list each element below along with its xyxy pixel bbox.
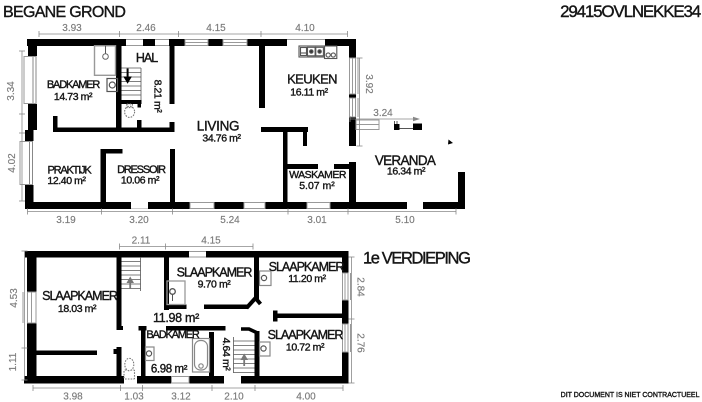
svg-text:29415OVLNEKKE34: 29415OVLNEKKE34 [560, 2, 701, 21]
svg-text:9.70 m²: 9.70 m² [198, 279, 232, 291]
svg-text:4.64 m²: 4.64 m² [220, 338, 232, 372]
svg-text:KEUKEN: KEUKEN [287, 72, 337, 87]
svg-text:4.15: 4.15 [201, 236, 221, 247]
svg-text:4.53: 4.53 [9, 288, 20, 308]
svg-text:16.11 m²: 16.11 m² [290, 87, 328, 99]
svg-text:SLAAPKAMER: SLAAPKAMER [269, 260, 345, 274]
svg-text:18.03 m²: 18.03 m² [58, 303, 97, 315]
svg-text:2.11: 2.11 [132, 236, 151, 247]
svg-text:3.93: 3.93 [62, 23, 82, 34]
svg-text:12.40 m²: 12.40 m² [47, 175, 86, 187]
svg-text:LIVING: LIVING [197, 119, 239, 134]
svg-text:10.06 m²: 10.06 m² [121, 175, 160, 187]
svg-text:14.73 m²: 14.73 m² [54, 91, 93, 103]
svg-text:2.10: 2.10 [224, 392, 244, 402]
svg-text:4.00: 4.00 [296, 392, 316, 402]
svg-text:BADKAMER: BADKAMER [47, 79, 100, 91]
svg-text:6.98 m²: 6.98 m² [151, 364, 188, 376]
svg-text:3.34: 3.34 [6, 81, 17, 101]
svg-text:BADKAMER: BADKAMER [146, 329, 199, 341]
svg-text:11.20 m²: 11.20 m² [288, 273, 326, 285]
svg-text:8.21 m²: 8.21 m² [152, 80, 164, 114]
svg-text:4.10: 4.10 [295, 23, 315, 34]
svg-text:10.72 m²: 10.72 m² [286, 342, 325, 354]
svg-text:DIT DOCUMENT IS NIET CONTRACTU: DIT DOCUMENT IS NIET CONTRACTUEEL [561, 392, 700, 399]
svg-text:2.46: 2.46 [136, 23, 156, 34]
svg-text:3.12: 3.12 [171, 392, 191, 402]
svg-text:3.20: 3.20 [129, 215, 149, 226]
svg-text:16.34 m²: 16.34 m² [387, 166, 426, 178]
svg-text:11.98 m²: 11.98 m² [153, 311, 199, 325]
svg-text:2.84: 2.84 [355, 277, 366, 297]
svg-text:3.24: 3.24 [373, 108, 393, 119]
svg-text:SLAAPKAMER: SLAAPKAMER [42, 289, 118, 303]
svg-text:3.98: 3.98 [63, 392, 83, 402]
svg-text:5.10: 5.10 [395, 215, 415, 226]
svg-text:2.76: 2.76 [355, 333, 366, 353]
svg-text:5.24: 5.24 [220, 215, 240, 226]
svg-text:5.07 m²: 5.07 m² [299, 180, 335, 192]
svg-text:4.15: 4.15 [206, 23, 226, 34]
svg-text:1.11: 1.11 [8, 352, 19, 371]
svg-text:HAL: HAL [136, 51, 158, 65]
svg-text:3.19: 3.19 [56, 215, 76, 226]
svg-text:SLAAPKAMER: SLAAPKAMER [177, 266, 253, 280]
svg-text:3.92: 3.92 [363, 74, 374, 94]
svg-text:BEGANE GROND: BEGANE GROND [3, 4, 125, 21]
svg-text:3.01: 3.01 [307, 215, 327, 226]
svg-text:1.03: 1.03 [124, 392, 144, 402]
svg-text:1e VERDIEPING: 1e VERDIEPING [363, 250, 470, 268]
svg-text:4.02: 4.02 [7, 153, 18, 173]
svg-text:SLAAPKAMER: SLAAPKAMER [268, 328, 344, 342]
svg-text:34.76 m²: 34.76 m² [202, 133, 241, 145]
